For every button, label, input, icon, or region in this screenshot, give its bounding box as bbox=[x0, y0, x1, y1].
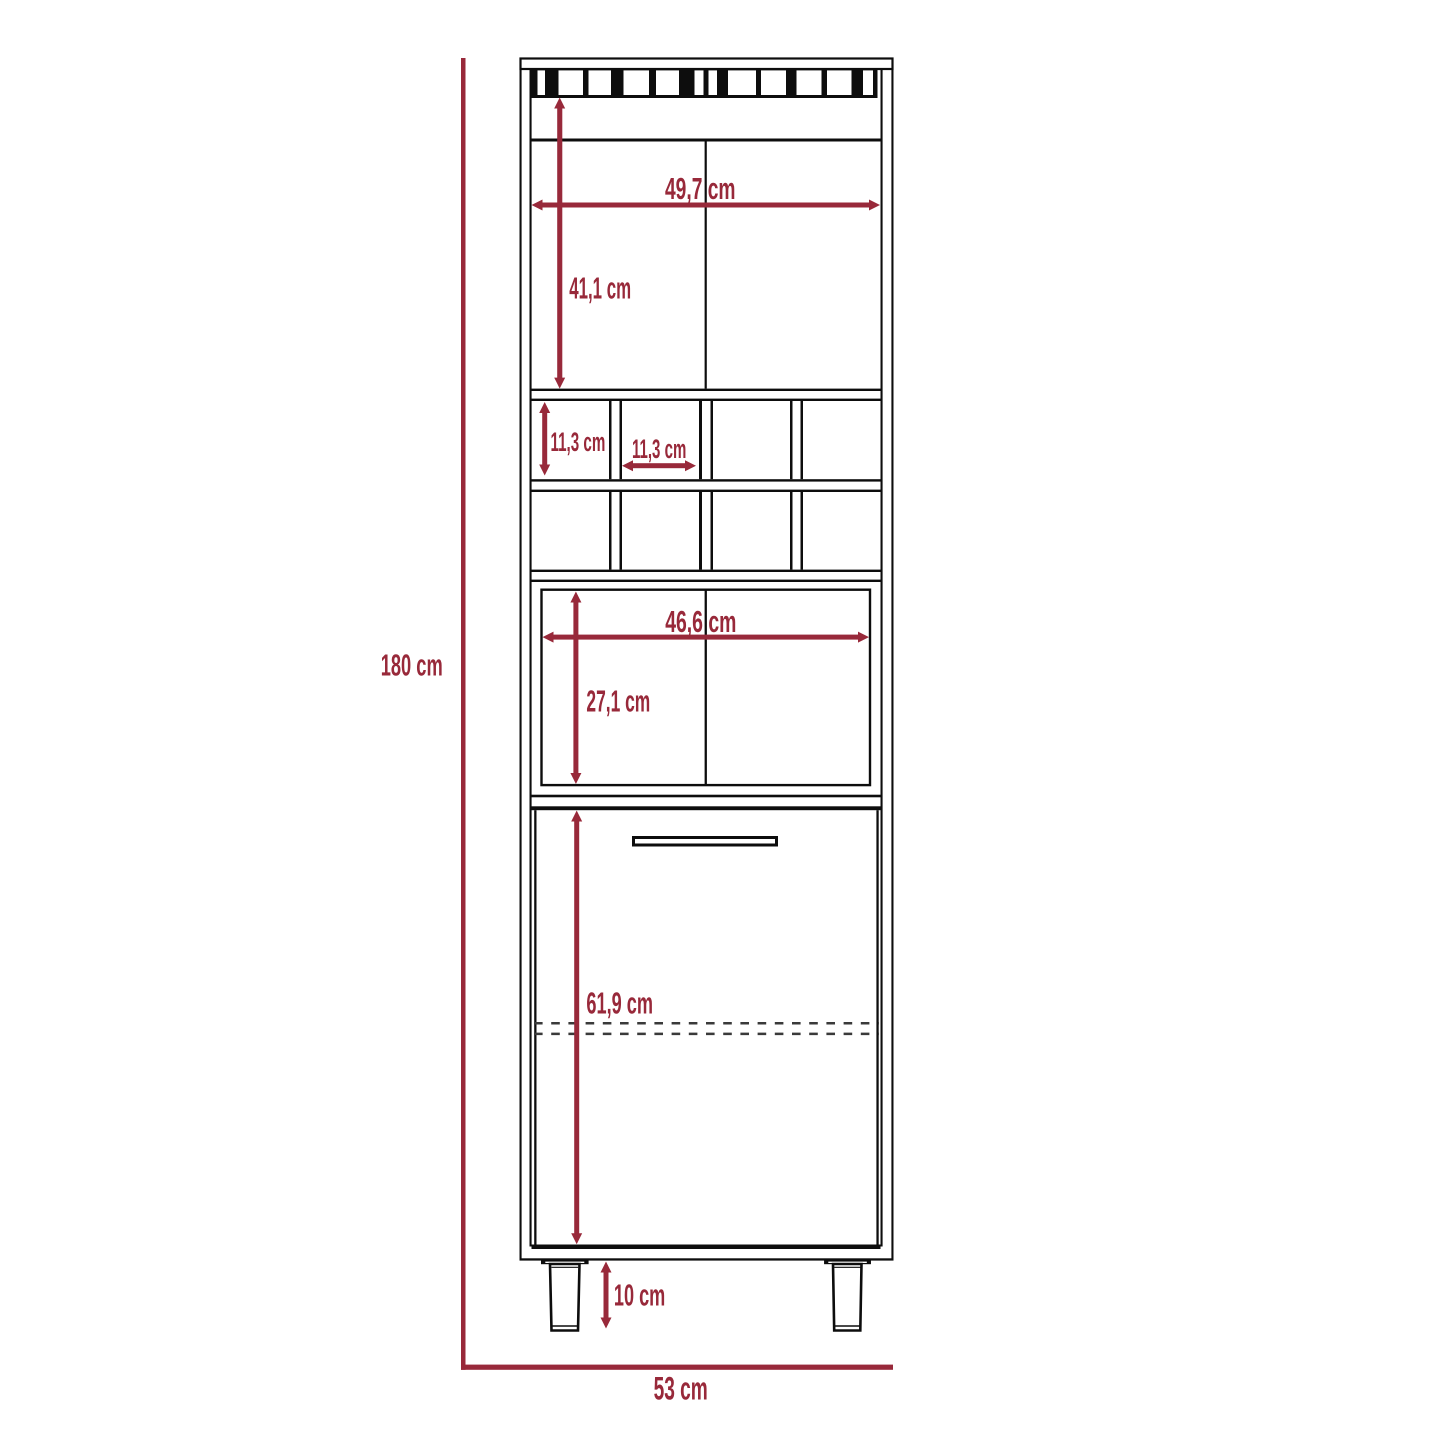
svg-text:180 cm: 180 cm bbox=[381, 647, 443, 682]
svg-text:11,3 cm: 11,3 cm bbox=[551, 427, 606, 457]
svg-text:61,9 cm: 61,9 cm bbox=[586, 986, 653, 1021]
svg-text:27,1 cm: 27,1 cm bbox=[586, 684, 650, 719]
svg-text:49,7 cm: 49,7 cm bbox=[665, 171, 736, 206]
svg-text:10 cm: 10 cm bbox=[614, 1278, 665, 1313]
svg-text:41,1 cm: 41,1 cm bbox=[569, 271, 631, 306]
svg-text:11,3 cm: 11,3 cm bbox=[632, 434, 686, 464]
svg-text:46,6 cm: 46,6 cm bbox=[665, 604, 736, 639]
svg-text:53 cm: 53 cm bbox=[654, 1371, 708, 1407]
